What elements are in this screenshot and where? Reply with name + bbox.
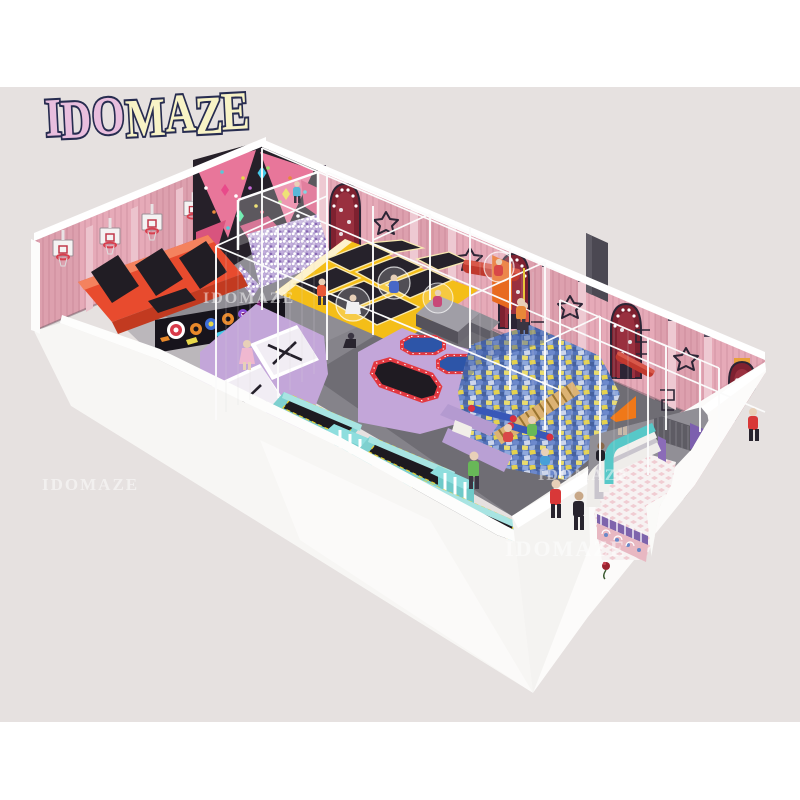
svg-text:M: M [124,88,167,149]
svg-text:A: A [164,83,197,144]
svg-text:IDOMAZE: IDOMAZE [505,536,627,561]
svg-text:IDOMAZE: IDOMAZE [42,475,139,494]
svg-text:IDOMAZE: IDOMAZE [538,467,630,484]
svg-text:E: E [220,82,251,142]
svg-text:IDOMAZE: IDOMAZE [203,290,295,307]
svg-text:O: O [90,86,126,147]
svg-text:D: D [59,90,92,151]
